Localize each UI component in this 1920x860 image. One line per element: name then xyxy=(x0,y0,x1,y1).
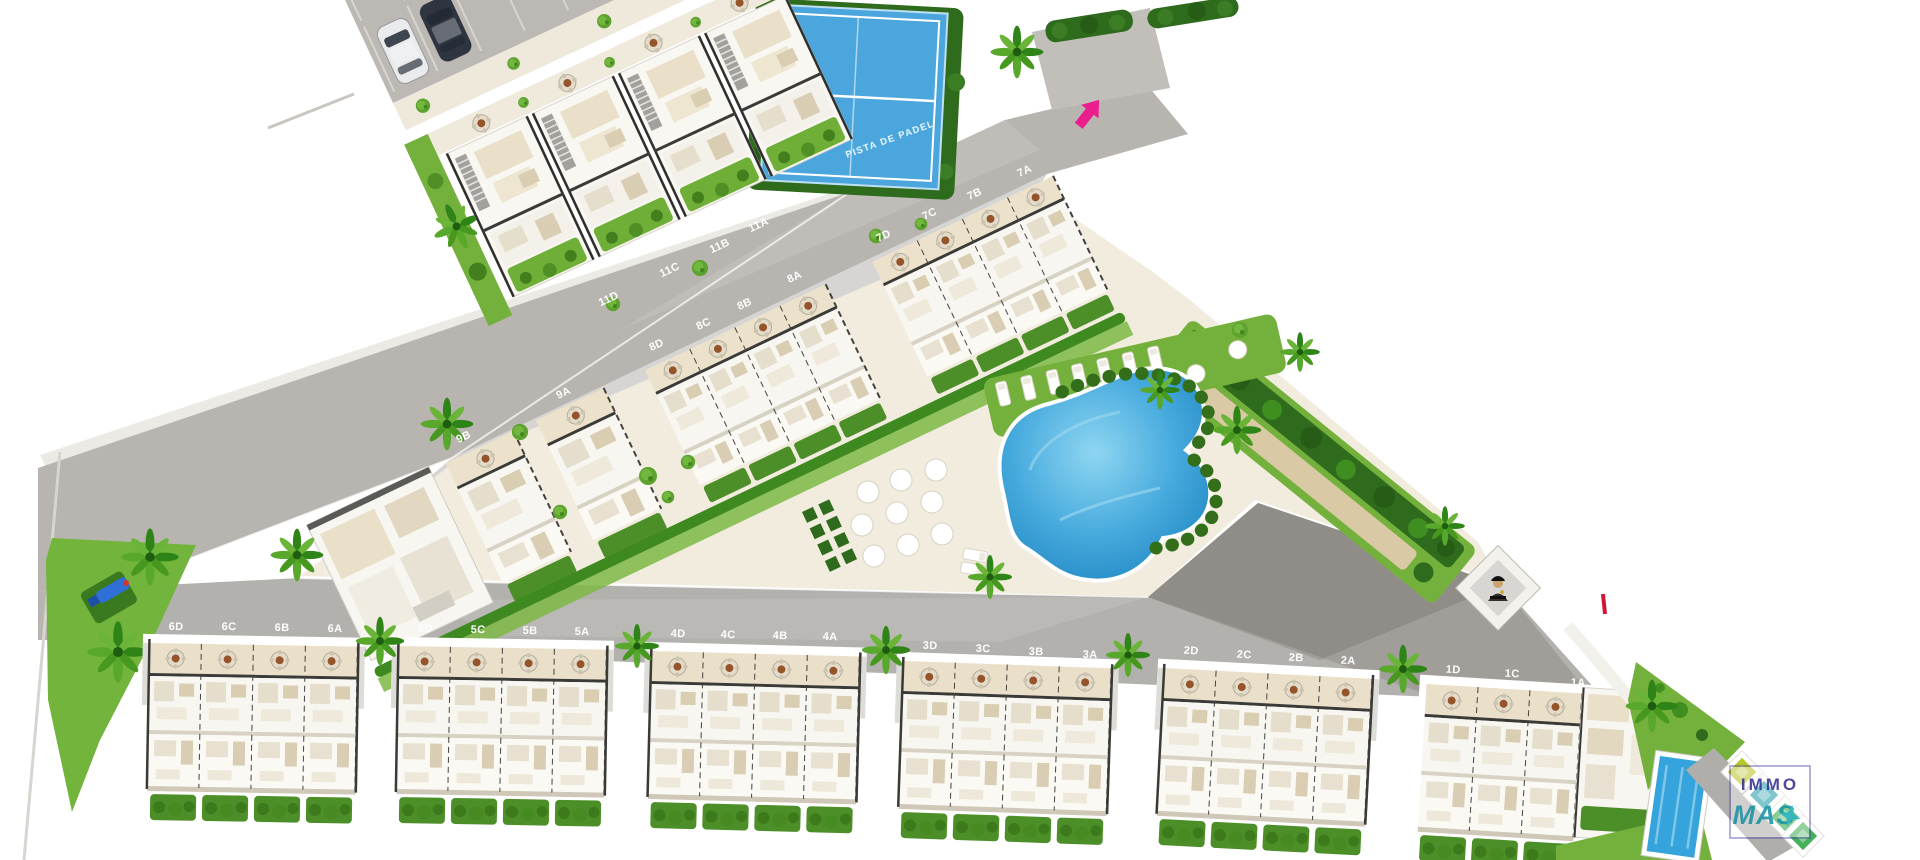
block-3 xyxy=(890,652,1119,852)
bush-icon xyxy=(553,505,567,519)
bush-icon xyxy=(1232,322,1248,338)
block-2 xyxy=(1148,659,1380,860)
logo-word-immo: IMMO xyxy=(1741,775,1799,794)
bush-icon xyxy=(692,260,708,276)
unit-label-1D: 1D xyxy=(1445,664,1460,677)
block-6 xyxy=(140,634,365,830)
block-4 xyxy=(640,642,867,840)
unit-label-5A: 5A xyxy=(575,626,590,638)
unit-label-2A: 2A xyxy=(1340,655,1355,668)
unit-label-6D: 6D xyxy=(169,621,184,633)
unit-label-3B: 3B xyxy=(1028,646,1043,659)
site-plan: IMMO MAS PISTA DE PADEL 11A 11B 11C 11D … xyxy=(0,0,1920,860)
unit-label-4C: 4C xyxy=(720,629,735,641)
unit-label-2B: 2B xyxy=(1288,652,1303,665)
unit-label-5D: 5D xyxy=(418,623,433,635)
unit-label-3A: 3A xyxy=(1082,649,1097,662)
bush-icon xyxy=(512,424,528,440)
unit-label-6B: 6B xyxy=(275,622,290,634)
bush-icon xyxy=(1696,729,1708,741)
bush-icon xyxy=(662,491,675,504)
unit-label-6C: 6C xyxy=(222,621,237,633)
unit-label-2C: 2C xyxy=(1236,649,1251,662)
unit-label-4D: 4D xyxy=(670,628,685,640)
site-plan-svg: IMMO MAS PISTA DE PADEL 11A 11B 11C 11D … xyxy=(0,0,1920,860)
unit-label-4B: 4B xyxy=(772,630,787,642)
unit-label-5C: 5C xyxy=(471,624,486,636)
unit-label-3C: 3C xyxy=(975,643,990,656)
unit-label-6A: 6A xyxy=(328,623,343,635)
unit-label-3D: 3D xyxy=(922,640,937,653)
unit-label-5B: 5B xyxy=(523,625,538,637)
bush-icon xyxy=(681,455,695,469)
unit-label-4A: 4A xyxy=(822,631,837,643)
block-5 xyxy=(389,637,614,833)
unit-label-2D: 2D xyxy=(1183,645,1198,658)
bush-icon xyxy=(639,467,657,485)
unit-label-1C: 1C xyxy=(1504,668,1519,681)
logo-watermark: IMMO MAS xyxy=(1730,766,1810,838)
unit-label-1A: 1A xyxy=(1570,677,1585,690)
